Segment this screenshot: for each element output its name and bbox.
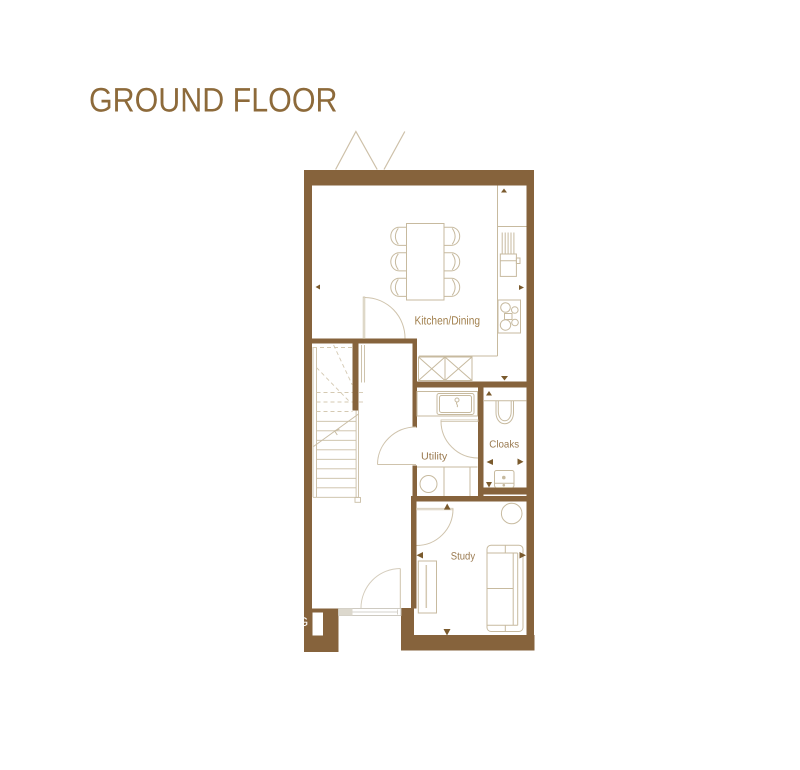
svg-text:Cloaks: Cloaks xyxy=(489,439,519,450)
svg-text:Kitchen/Dining: Kitchen/Dining xyxy=(415,314,481,328)
svg-text:Utility: Utility xyxy=(421,451,448,462)
svg-text:Study: Study xyxy=(451,551,476,563)
svg-text:G: G xyxy=(299,615,309,629)
svg-text:GROUND FLOOR: GROUND FLOOR xyxy=(89,82,338,120)
